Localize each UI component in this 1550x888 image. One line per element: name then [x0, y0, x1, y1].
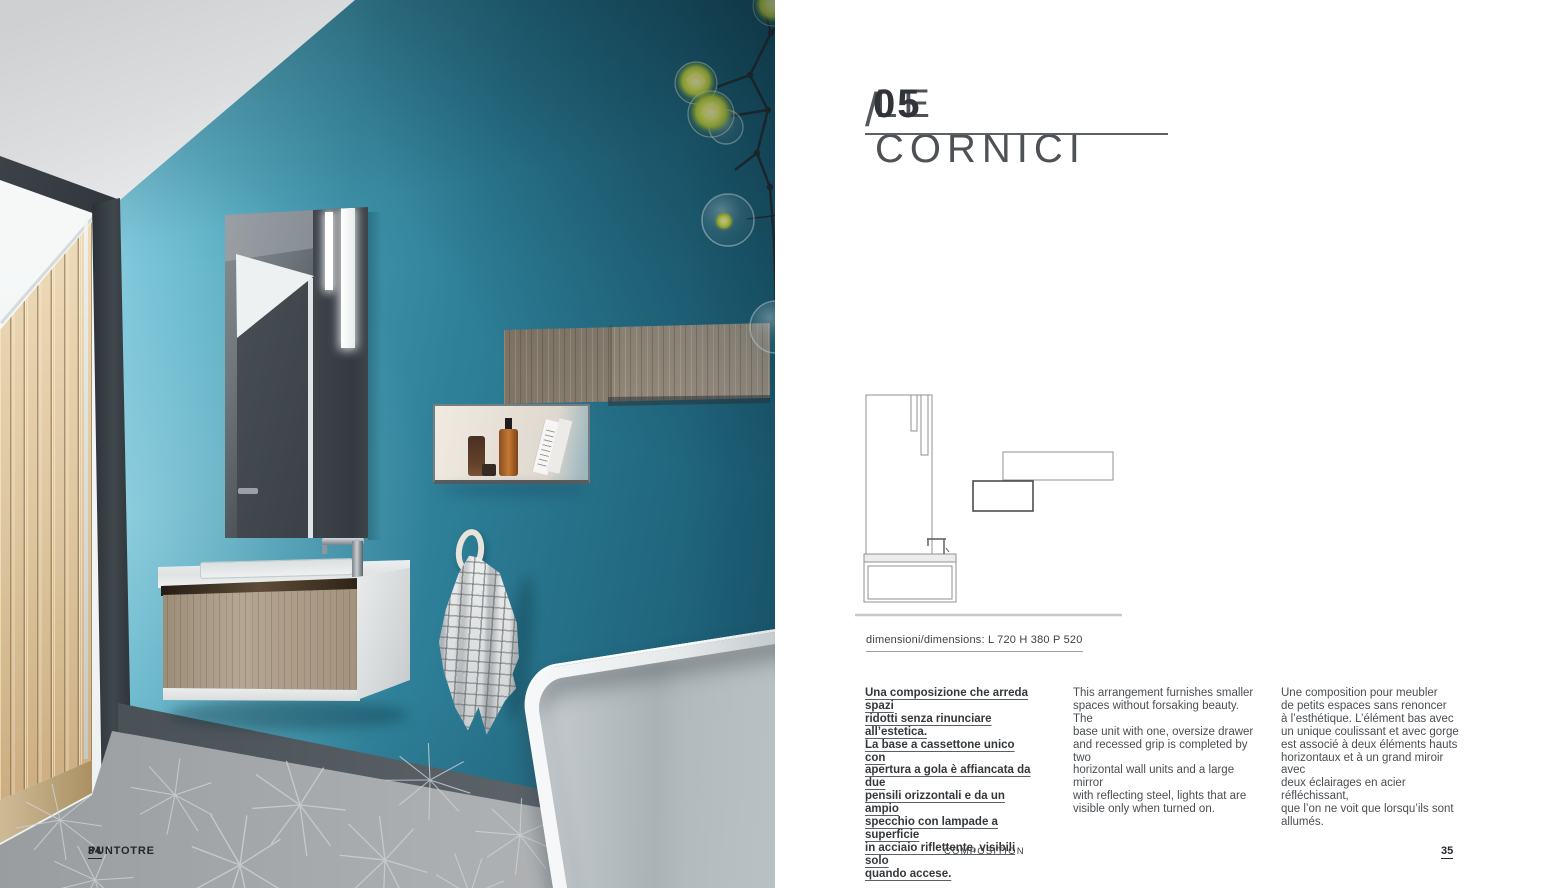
drawing-countertop — [864, 554, 956, 562]
drawing-lamp-short — [911, 395, 917, 431]
mirror-reflection-frame-line — [308, 278, 313, 538]
wall-cabinet-seam — [610, 325, 612, 403]
window-glass-edge — [84, 214, 88, 759]
vanity-wall-shadow — [168, 700, 408, 730]
faucet-spout-tip — [322, 544, 327, 554]
description-french: Une composition pour meubler de petits e… — [1281, 687, 1465, 829]
faucet-body — [352, 541, 363, 577]
mirror-led-strip-short — [325, 212, 333, 290]
mirror-reflection-door-handle — [238, 488, 258, 494]
drawing-drawer-front — [868, 566, 952, 599]
title-number: 05 — [873, 82, 922, 127]
catalog-spread: 34 PUNTOTRE / LE CORNICI 05 — [0, 0, 1550, 888]
bathtub-interior — [534, 641, 775, 888]
vanity-side-panel — [357, 566, 411, 701]
drawing-faucet — [927, 539, 949, 554]
pendant-lamp — [635, 0, 775, 480]
drawing-mirror — [866, 395, 932, 554]
description-english: This arrangement furnishes smaller space… — [1073, 687, 1255, 816]
wall-mirror — [222, 206, 368, 540]
amber-soap-bottle — [499, 429, 518, 476]
shelf-shadow — [438, 486, 586, 494]
cosmetic-jar — [482, 464, 496, 476]
catalog-text-page: / LE CORNICI 05 dimensioni/dimensi — [775, 0, 1550, 888]
dimensions-label: dimensioni/dimensions: L 720 H 380 P 520 — [866, 634, 1083, 652]
vanity-wood-drawer — [161, 585, 358, 698]
drawing-wall-unit-lower — [973, 481, 1033, 511]
technical-drawing — [853, 388, 1125, 620]
freestanding-bathtub — [518, 624, 775, 888]
steel-open-shelf — [433, 404, 590, 484]
wall-cabinet-left-unit — [504, 322, 610, 406]
mirror-led-strip-long — [341, 208, 355, 348]
section-label: COMPOSITION — [944, 846, 1025, 857]
title-underline — [865, 133, 1168, 135]
page-number-right: 35 — [1441, 845, 1453, 859]
drawing-wall-unit-upper — [1003, 452, 1113, 480]
mirror-shadow — [368, 212, 382, 540]
brand-name: PUNTOTRE — [88, 845, 155, 857]
bathroom-photo: 34 PUNTOTRE — [0, 0, 775, 888]
drawing-lamp-long — [921, 395, 928, 455]
